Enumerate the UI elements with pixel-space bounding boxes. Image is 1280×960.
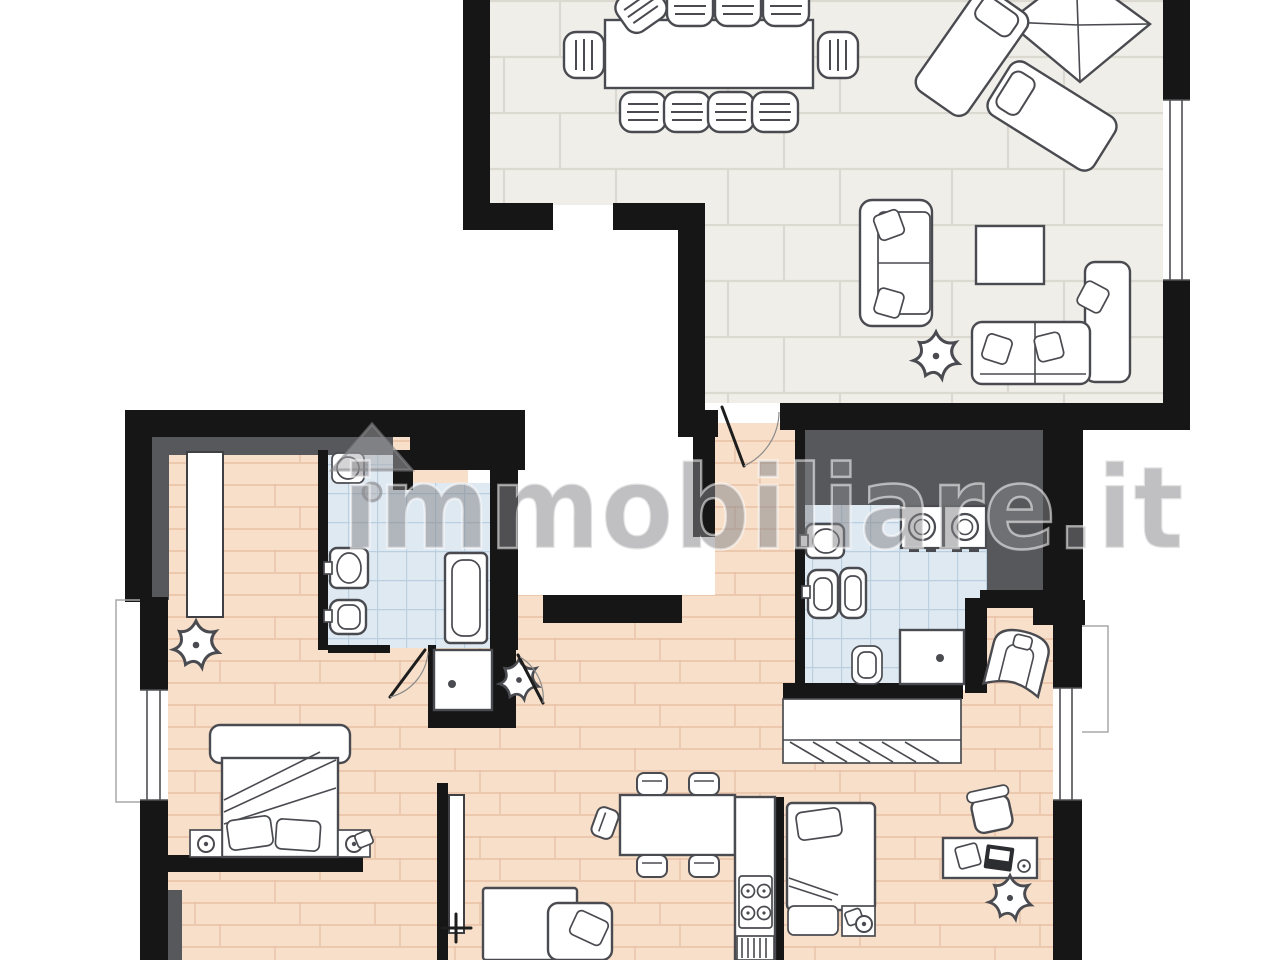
- wall-living-right-bottom: [1163, 280, 1190, 430]
- chair: [637, 855, 667, 877]
- chair: [689, 773, 719, 795]
- toilet: [324, 600, 366, 634]
- wall-left-lower: [140, 800, 168, 960]
- dining-chair: [667, 0, 713, 26]
- wall-central-top: [543, 595, 682, 623]
- wall-bathroom-left-south: [328, 645, 390, 653]
- watermark-text: immobiliare.it: [342, 442, 1184, 576]
- shower: [900, 630, 964, 684]
- dining-chair: [708, 92, 754, 132]
- cooktop: [739, 876, 772, 928]
- kitchen-sink: [737, 936, 774, 960]
- toilet-small: [852, 646, 882, 684]
- wall-living-bottom-a: [463, 203, 553, 230]
- watermark: immobiliare.it: [332, 424, 1184, 576]
- wall-step: [678, 410, 718, 437]
- floor-plan-image: immobiliare.it: [0, 0, 1280, 960]
- wall-bedroom-right-top: [1033, 600, 1085, 625]
- desk: [943, 838, 1037, 878]
- kitchen-dining-table: [620, 795, 735, 855]
- dining-chair: [763, 0, 809, 26]
- wall-wardrobe-top: [783, 683, 963, 699]
- wall-living-inner-vertical: [678, 203, 705, 437]
- paper-sheet: [955, 843, 982, 870]
- dining-chair: [818, 32, 858, 78]
- dining-chair: [564, 32, 604, 78]
- gray-band-left: [152, 450, 169, 600]
- dining-chair: [715, 0, 761, 26]
- built-in-wardrobe: [187, 452, 223, 617]
- wall-central-door: [437, 783, 448, 960]
- two-seat-sofa: [860, 200, 932, 326]
- floor-plan-svg: immobiliare.it: [0, 0, 1280, 960]
- chair: [689, 855, 719, 877]
- dining-chair: [620, 92, 666, 132]
- nightstand: [788, 906, 838, 935]
- laptop-icon: [983, 844, 1014, 872]
- gray-band-bottom-left: [168, 890, 182, 960]
- single-bed: [787, 803, 875, 936]
- wall-bedroom-right-east-a: [1053, 625, 1082, 690]
- kitchen-counter: [735, 797, 775, 960]
- window-living-right: [1163, 100, 1190, 280]
- nightstand-lamp-icon: [198, 836, 214, 852]
- bedside-lamp-table: [842, 906, 875, 936]
- wall-kitchen: [775, 797, 784, 960]
- coffee-table: [976, 226, 1044, 284]
- wall-living-right-top: [1163, 0, 1190, 100]
- bidet: [802, 570, 838, 618]
- dining-chair: [752, 92, 798, 132]
- wall-living-left: [463, 0, 490, 230]
- shower-cabin: [434, 650, 492, 710]
- wall-left-upper: [125, 410, 152, 602]
- wall-left-mid: [140, 597, 168, 692]
- dining-chair: [664, 92, 710, 132]
- chair: [637, 773, 667, 795]
- wall-bedroom-right-east-b: [1053, 800, 1082, 960]
- wardrobe: [783, 699, 961, 763]
- wall-living-bottom-right: [780, 403, 1190, 430]
